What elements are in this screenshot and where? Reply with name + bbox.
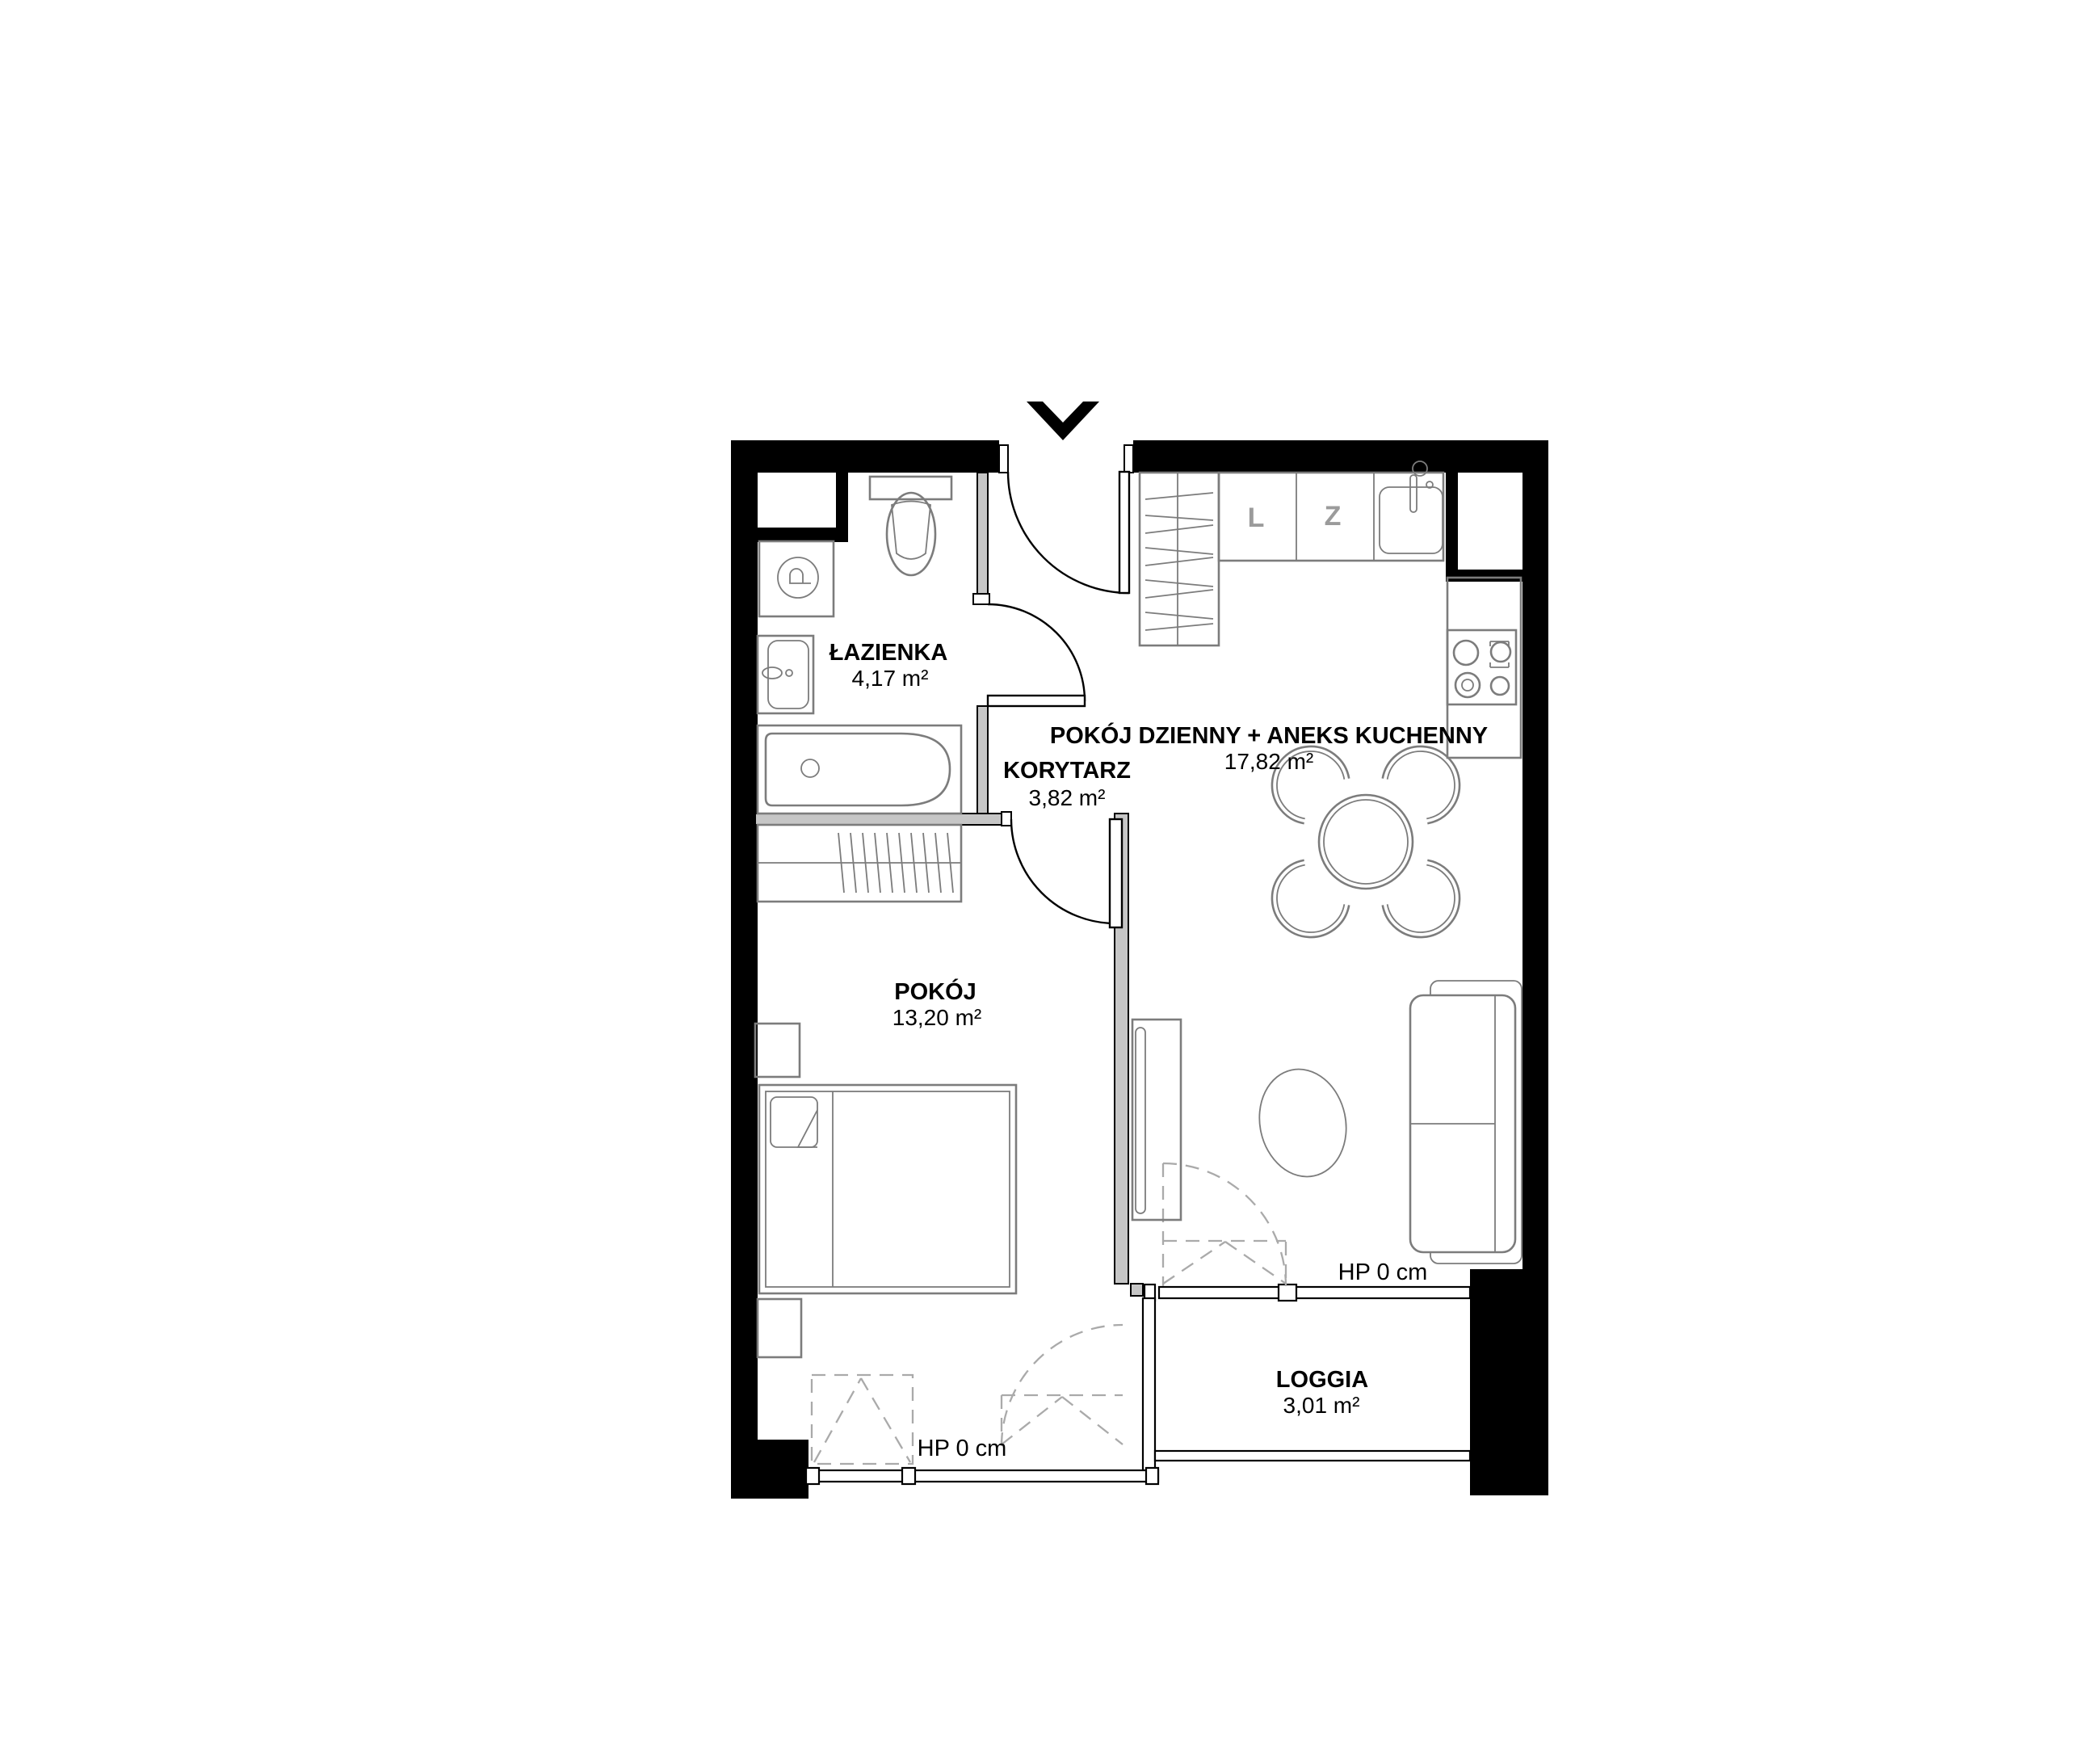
dashed-symbols bbox=[812, 1163, 1286, 1464]
partition-corridor-south bbox=[755, 814, 1002, 825]
bedroom-name: POKÓJ bbox=[894, 978, 976, 1005]
door-jamb bbox=[973, 594, 989, 604]
wall-top-left bbox=[731, 440, 999, 473]
washing-machine-icon bbox=[759, 541, 834, 616]
wall-niche-left bbox=[1446, 473, 1458, 582]
windows bbox=[806, 1285, 1470, 1484]
bed-icon bbox=[759, 1085, 1016, 1293]
window-mullion bbox=[1146, 1468, 1158, 1484]
door-jamb bbox=[999, 445, 1008, 473]
fridge-marker: L bbox=[1248, 502, 1265, 533]
entrance-arrow-icon bbox=[1027, 402, 1099, 440]
washbasin-icon bbox=[758, 636, 813, 713]
door-leaf bbox=[1119, 472, 1129, 593]
nightstand-icon bbox=[758, 1299, 801, 1357]
tv-cabinet-icon bbox=[1132, 1020, 1181, 1220]
door-swing-arc bbox=[1008, 472, 1129, 593]
corridor-area: 3,82 m² bbox=[1029, 785, 1106, 810]
living-window bbox=[1159, 1287, 1470, 1298]
sofa-icon bbox=[1410, 981, 1522, 1264]
loggia-railing bbox=[1155, 1451, 1470, 1461]
partition-bathroom-upper bbox=[977, 473, 988, 594]
window-mullion bbox=[902, 1468, 915, 1484]
cooktop-icon bbox=[1447, 630, 1516, 704]
hp-bedroom-label: HP 0 cm bbox=[918, 1436, 1007, 1461]
bathroom-area: 4,17 m² bbox=[852, 666, 929, 691]
kitchen-fixtures: L Z bbox=[1140, 461, 1521, 758]
wall-shaft-stub-right bbox=[836, 473, 848, 542]
toilet-icon bbox=[870, 477, 951, 575]
bedroom-balcony-door-swing bbox=[1002, 1325, 1123, 1446]
partition-bathroom-lower bbox=[977, 706, 988, 816]
door-swing-arc bbox=[988, 604, 1085, 701]
loggia-side-window bbox=[1143, 1298, 1155, 1470]
bathtub-icon bbox=[758, 725, 961, 814]
wall-pillar-bottom-right bbox=[1470, 1269, 1548, 1495]
living-furniture bbox=[1132, 981, 1522, 1264]
window-mullion bbox=[1279, 1285, 1296, 1301]
wall-niche-bottom bbox=[1446, 570, 1524, 582]
window-mullion bbox=[806, 1468, 819, 1484]
door-swing-arc bbox=[1011, 819, 1115, 923]
kitchen-sink-icon bbox=[1380, 461, 1443, 553]
blanket-fold bbox=[798, 1110, 817, 1147]
wall-top-right bbox=[1133, 440, 1548, 473]
bedroom-furniture bbox=[755, 825, 1016, 1357]
door-jamb bbox=[1002, 812, 1011, 826]
wall-shaft-stub-bottom bbox=[731, 528, 848, 542]
bedroom-door bbox=[1011, 819, 1122, 927]
bedroom-wardrobe bbox=[758, 825, 961, 902]
wall-corner-bottom-left bbox=[758, 1440, 808, 1499]
dining-table-icon bbox=[1319, 795, 1413, 889]
corridor-name: KORYTARZ bbox=[1003, 758, 1131, 784]
bedroom-window-opening bbox=[812, 1375, 913, 1464]
bathroom-door bbox=[988, 604, 1085, 706]
wall-left bbox=[731, 440, 758, 1499]
bedroom-window bbox=[808, 1470, 1158, 1482]
kitchen-tall-cabinet bbox=[1140, 473, 1219, 645]
living-area: 17,82 m² bbox=[1224, 749, 1314, 774]
door-jamb bbox=[1124, 445, 1133, 473]
dishwasher-marker: Z bbox=[1325, 501, 1342, 532]
bedroom-area: 13,20 m² bbox=[892, 1005, 982, 1030]
living-name: POKÓJ DZIENNY + ANEKS KUCHENNY bbox=[1050, 721, 1488, 749]
door-leaf bbox=[988, 696, 1085, 706]
wall-right bbox=[1522, 473, 1548, 1269]
floor-plan: L Z bbox=[0, 0, 2100, 1745]
bathroom-name: ŁAZIENKA bbox=[829, 640, 948, 666]
rug-icon bbox=[1249, 1061, 1356, 1184]
nightstand-icon bbox=[755, 1024, 800, 1077]
partition-cap bbox=[1131, 1284, 1143, 1296]
hp-living-label: HP 0 cm bbox=[1338, 1259, 1428, 1285]
partitions bbox=[755, 473, 1143, 1296]
entrance-door bbox=[999, 445, 1133, 593]
loggia-area: 3,01 m² bbox=[1283, 1393, 1360, 1418]
door-leaf bbox=[1110, 819, 1122, 927]
loggia-name: LOGGIA bbox=[1276, 1367, 1368, 1393]
